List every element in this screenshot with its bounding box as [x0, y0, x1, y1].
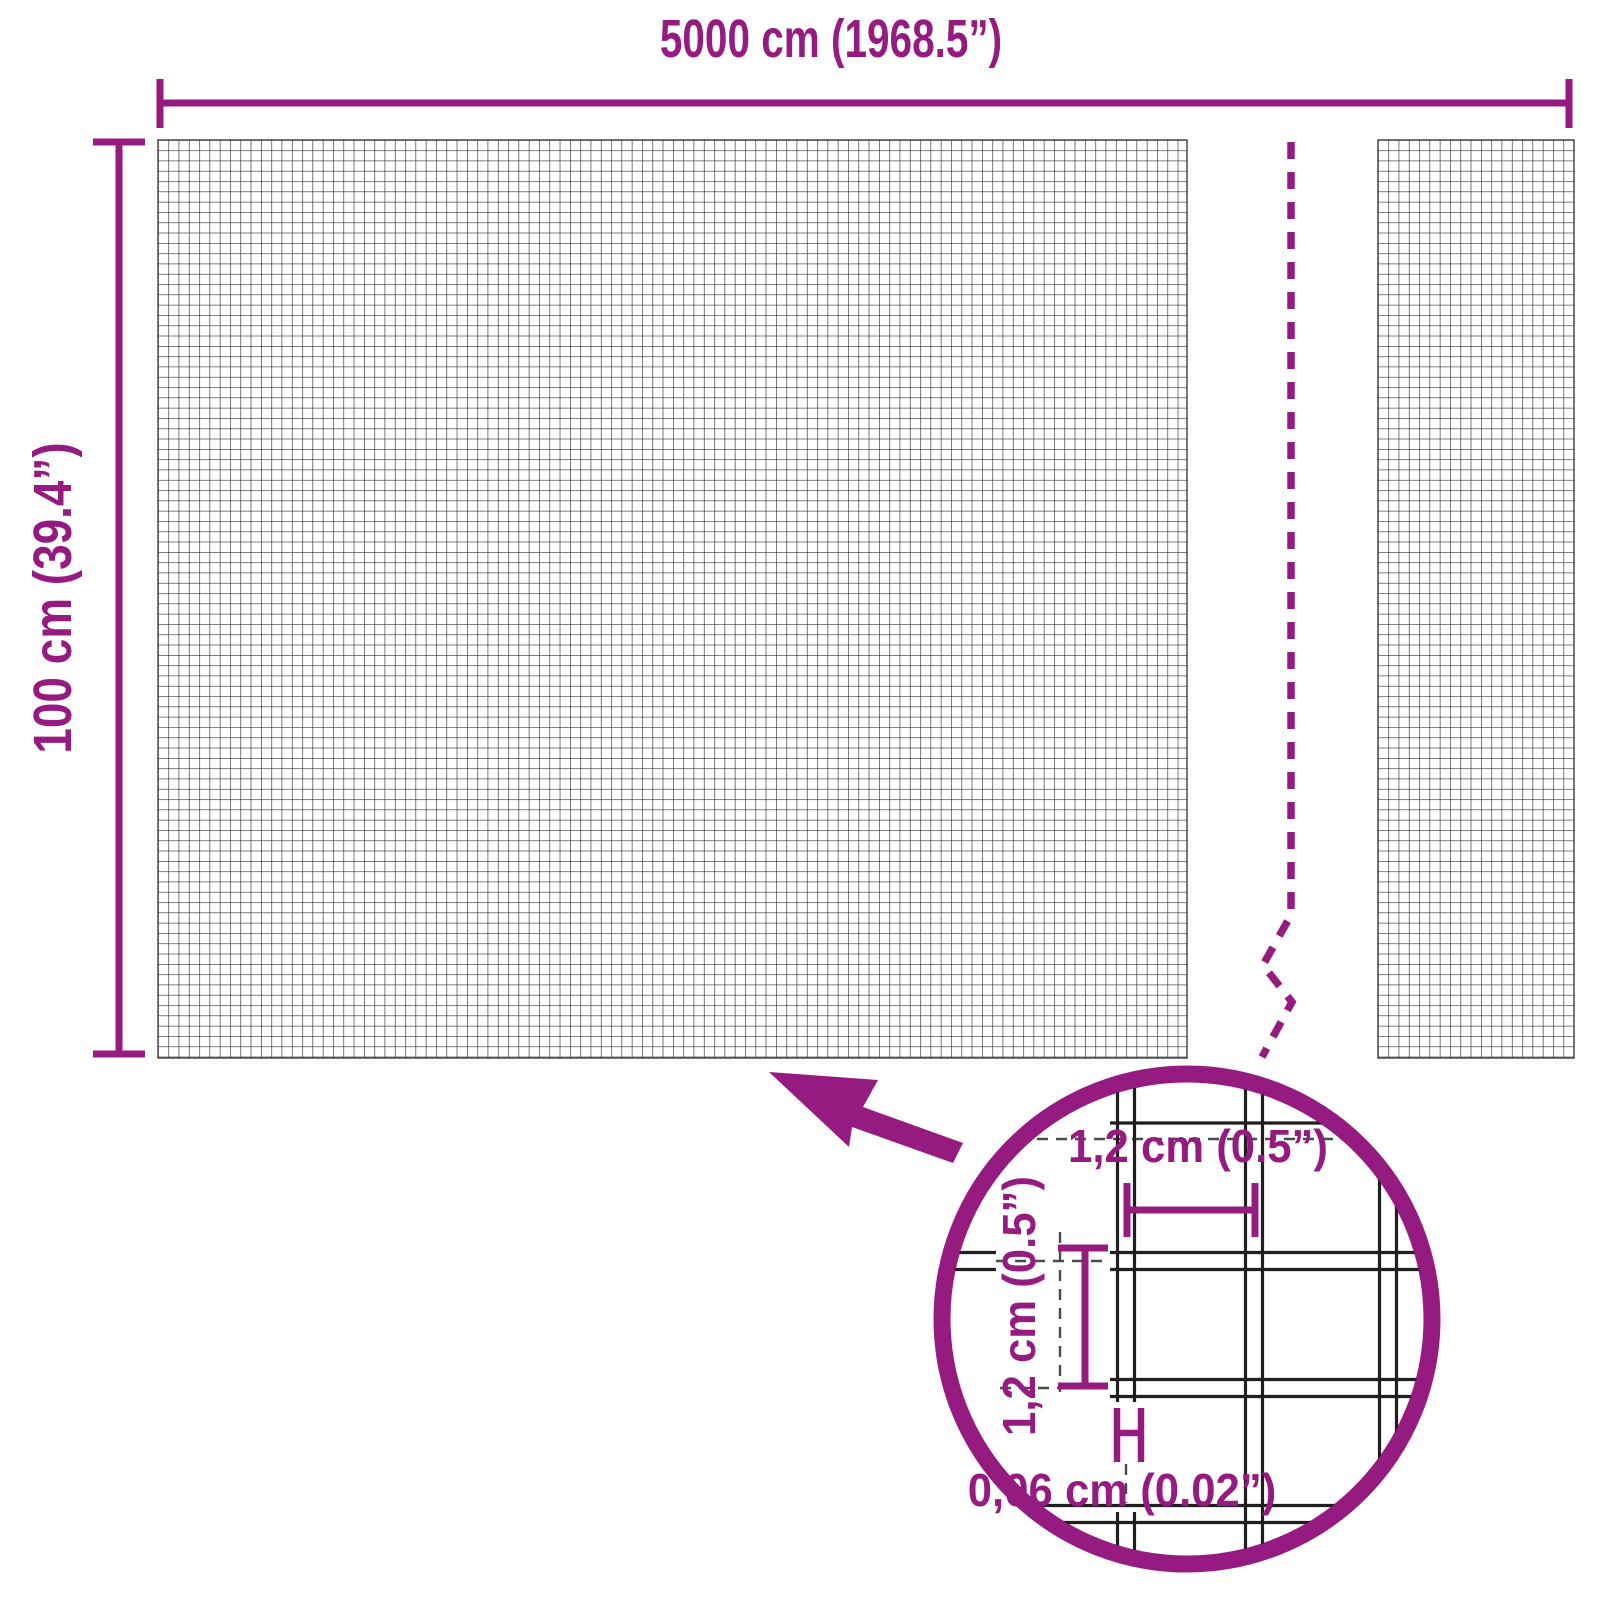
detail-cell-height-label: 1,2 cm (0.5”) — [996, 1176, 1042, 1436]
height-dimension — [93, 142, 145, 1054]
detail-cell-width-label: 1,2 cm (0.5”) — [1068, 1123, 1328, 1169]
height-dimension-label: 100 cm (39.4”) — [26, 442, 80, 753]
diagram-canvas — [0, 0, 1600, 1600]
mesh-panel-right — [1378, 140, 1574, 1058]
width-dimension — [158, 79, 1569, 128]
break-line — [1262, 142, 1292, 1057]
product-dimension-diagram: 5000 cm (1968.5”) 100 cm (39.4”) 1,2 cm … — [0, 0, 1600, 1600]
mesh-panel-left — [158, 140, 1187, 1058]
width-dimension-label: 5000 cm (1968.5”) — [660, 12, 1002, 66]
detail-arrow-icon — [769, 1072, 963, 1163]
wire-thickness-label: 0,06 cm (0.02”) — [968, 1467, 1277, 1513]
